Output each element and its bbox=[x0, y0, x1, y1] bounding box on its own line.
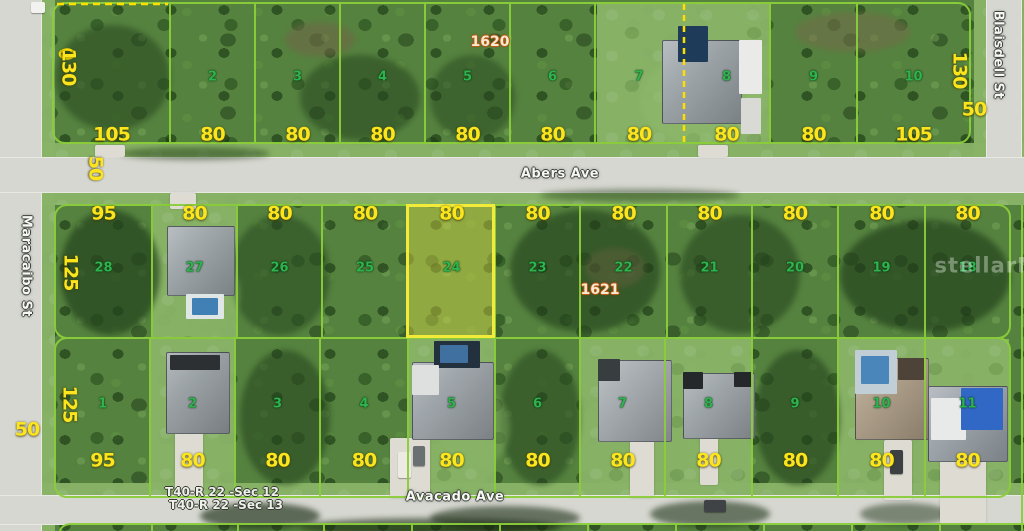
lot-middle-20: 2080 bbox=[752, 205, 838, 338]
mls-watermark: stellarMLS bbox=[934, 256, 1024, 277]
lot-number: 19 bbox=[872, 262, 890, 275]
lot-north-4: 480 bbox=[340, 3, 425, 143]
lot-south-10: 1080 bbox=[838, 338, 925, 497]
aerial-parcel-map: Abers Ave Avacado Ave Maracaibo St Blais… bbox=[0, 0, 1024, 531]
lot-number: 5 bbox=[447, 398, 456, 411]
lot-north-corner: 105 bbox=[53, 3, 170, 143]
section-label-line2: T40-R 22 -Sec 13 bbox=[169, 499, 283, 511]
lot-north-3: 380 bbox=[255, 3, 340, 143]
lot-number: 4 bbox=[359, 398, 368, 411]
lot-number: 10 bbox=[872, 398, 890, 411]
lot-number: 27 bbox=[185, 262, 203, 275]
lot-number: 22 bbox=[614, 262, 632, 275]
lot-number: 8 bbox=[704, 398, 713, 411]
lot-width-label: 80 bbox=[439, 452, 463, 471]
lot-width-label: 80 bbox=[611, 205, 635, 224]
lot-width-label: 95 bbox=[90, 452, 114, 471]
lot-south-5: 580 bbox=[408, 338, 495, 497]
lot-width-label: 80 bbox=[627, 126, 651, 145]
lot-number: 26 bbox=[270, 262, 288, 275]
lot-width-label: 80 bbox=[697, 205, 721, 224]
lot-north-7: 780 bbox=[595, 3, 683, 143]
lot-number: 5 bbox=[463, 71, 472, 84]
lot-number: 3 bbox=[273, 398, 282, 411]
lot-width-label: 80 bbox=[455, 126, 479, 145]
lot-width-label: 80 bbox=[439, 205, 463, 224]
lot-middle-21: 2180 bbox=[667, 205, 752, 338]
lot-south-8: 880 bbox=[665, 338, 752, 497]
lot-number: 24 bbox=[442, 262, 460, 275]
lot-number: 25 bbox=[356, 262, 374, 275]
lot-middle-23: 2380 bbox=[495, 205, 580, 338]
lot-width-label: 80 bbox=[540, 126, 564, 145]
lot-south-2: 280 bbox=[150, 338, 235, 497]
lot-north-6: 680 bbox=[510, 3, 595, 143]
lot-width-label: 80 bbox=[200, 126, 224, 145]
lot-width-label: 80 bbox=[525, 452, 549, 471]
lot-width-label: 80 bbox=[180, 452, 204, 471]
lot-south-7: 780 bbox=[580, 338, 665, 497]
lot-south-3: 380 bbox=[235, 338, 320, 497]
lot-middle-22: 2280 bbox=[580, 205, 667, 338]
lot-number: 9 bbox=[809, 71, 818, 84]
street-label-abers-ave: Abers Ave bbox=[521, 168, 599, 181]
lot-middle-26: 2680 bbox=[237, 205, 322, 338]
lot-width-label: 80 bbox=[267, 205, 291, 224]
lot-north-2: 280 bbox=[170, 3, 255, 143]
lot-number: 21 bbox=[700, 262, 718, 275]
lot-width-label: 105 bbox=[93, 126, 130, 145]
lot-width-label: 80 bbox=[370, 126, 394, 145]
lot-number: 8 bbox=[722, 71, 731, 84]
lot-number: 10 bbox=[904, 71, 922, 84]
lot-width-label: 80 bbox=[265, 452, 289, 471]
lot-number: 20 bbox=[786, 262, 804, 275]
lot-south-6: 680 bbox=[495, 338, 580, 497]
lot-number: 28 bbox=[94, 262, 112, 275]
lot-width-label: 80 bbox=[610, 452, 634, 471]
street-label-blaisdell-st: Blaisdell St bbox=[992, 11, 1005, 99]
lot-width-label: 80 bbox=[285, 126, 309, 145]
lot-width-label: 95 bbox=[91, 205, 115, 224]
lot-width-label: 80 bbox=[525, 205, 549, 224]
lot-north-9: 980 bbox=[770, 3, 857, 143]
lot-width-label: 80 bbox=[801, 126, 825, 145]
street-label-maracaibo-st: Maracaibo St bbox=[20, 215, 33, 317]
lot-number: 23 bbox=[528, 262, 546, 275]
lot-number: 2 bbox=[188, 398, 197, 411]
lot-width-label: 80 bbox=[783, 205, 807, 224]
lot-width-label: 80 bbox=[783, 452, 807, 471]
lot-north-5: 580 bbox=[425, 3, 510, 143]
lot-number: 1 bbox=[98, 398, 107, 411]
lot-middle-19: 1980 bbox=[838, 205, 925, 338]
lot-middle-24: 2480 bbox=[408, 205, 495, 338]
lot-middle-27: 2780 bbox=[152, 205, 237, 338]
lot-width-label: 80 bbox=[352, 452, 376, 471]
lot-south-11: 1180 bbox=[925, 338, 1010, 497]
lot-number: 9 bbox=[790, 398, 799, 411]
lot-number: 4 bbox=[378, 71, 387, 84]
lot-width-label: 80 bbox=[869, 452, 893, 471]
road-width-50-abers: 50 bbox=[86, 156, 105, 180]
lot-width-label: 80 bbox=[714, 126, 738, 145]
lot-middle-28: 2895 bbox=[55, 205, 152, 338]
lot-number: 11 bbox=[958, 398, 976, 411]
lot-number: 3 bbox=[293, 71, 302, 84]
road-width-50-maracaibo: 50 bbox=[15, 421, 39, 440]
lot-number: 7 bbox=[634, 71, 643, 84]
lot-width-label: 80 bbox=[182, 205, 206, 224]
lot-width-label: 80 bbox=[353, 205, 377, 224]
lot-width-label: 80 bbox=[696, 452, 720, 471]
lot-width-label: 105 bbox=[895, 126, 932, 145]
lot-width-label: 80 bbox=[955, 205, 979, 224]
lot-north-8: 880 bbox=[683, 3, 770, 143]
lot-number: 2 bbox=[208, 71, 217, 84]
lot-width-label: 80 bbox=[869, 205, 893, 224]
lot-number: 6 bbox=[548, 71, 557, 84]
lot-north-10: 10105 bbox=[857, 3, 970, 143]
lot-width-label: 80 bbox=[955, 452, 979, 471]
lot-number: 6 bbox=[533, 398, 542, 411]
lot-south-1: 195 bbox=[55, 338, 150, 497]
lot-number: 7 bbox=[618, 398, 627, 411]
lot-south-9: 980 bbox=[752, 338, 838, 497]
lot-middle-25: 2580 bbox=[322, 205, 408, 338]
lot-south-4: 480 bbox=[320, 338, 408, 497]
